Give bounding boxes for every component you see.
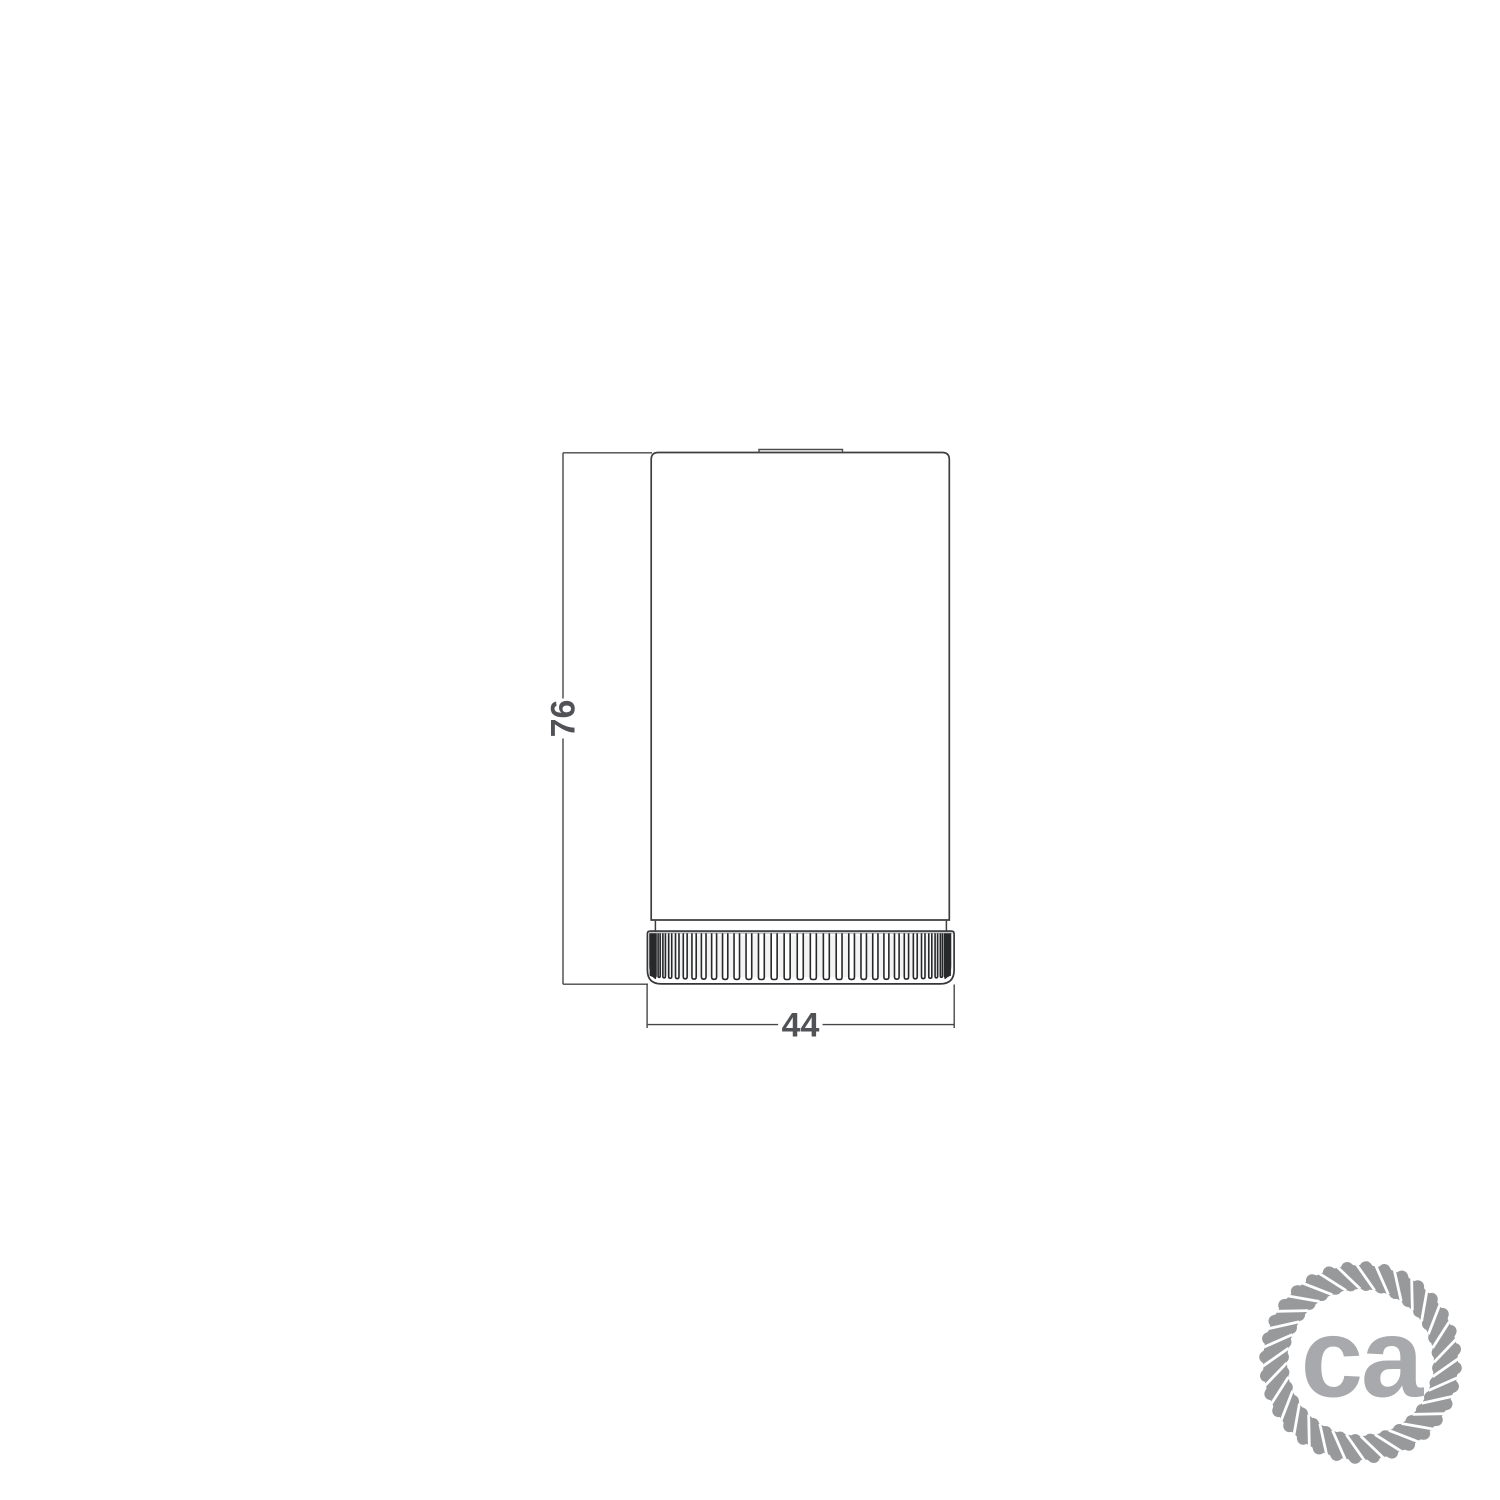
svg-text:ca: ca (1301, 1296, 1424, 1421)
svg-text:76: 76 (545, 700, 583, 738)
svg-text:44: 44 (782, 1006, 820, 1044)
